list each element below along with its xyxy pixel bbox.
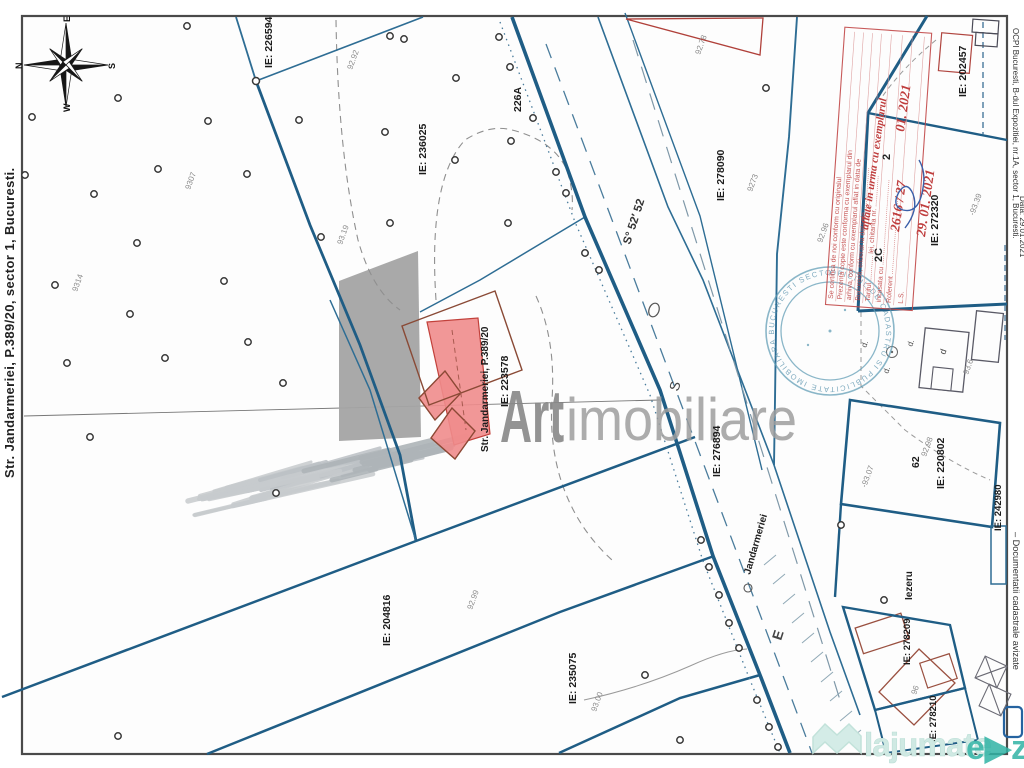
- svg-text:IE: 276894: IE: 276894: [711, 425, 723, 477]
- svg-text:IE: 278209: IE: 278209: [902, 619, 913, 665]
- svg-text:E: E: [62, 16, 72, 22]
- svg-text:imobiliare: imobiliare: [566, 386, 797, 453]
- svg-text:2C: 2C: [873, 248, 885, 262]
- svg-text:Str. Jandarmeriei, P.389/20: Str. Jandarmeriei, P.389/20: [480, 326, 491, 452]
- svg-text:IE: 235075: IE: 235075: [567, 652, 579, 704]
- svg-text:Str. Jandarmeriei, P.389/20, s: Str. Jandarmeriei, P.389/20, sector 1, B…: [2, 167, 17, 478]
- svg-text:W: W: [62, 103, 72, 112]
- svg-text:2: 2: [881, 154, 893, 160]
- svg-text:IE: 236025: IE: 236025: [417, 123, 429, 175]
- svg-text:Iezeru: Iezeru: [904, 571, 915, 600]
- svg-text:IE: 226594: IE: 226594: [263, 16, 275, 68]
- svg-text:IE: 220802: IE: 220802: [935, 437, 947, 489]
- svg-text:IE: 202457: IE: 202457: [957, 45, 969, 97]
- svg-text:L.S.: L.S.: [898, 291, 906, 304]
- svg-text:IE: 204816: IE: 204816: [381, 594, 393, 646]
- svg-text:e▶z: e▶z: [966, 729, 1024, 767]
- svg-text:N: N: [14, 63, 24, 70]
- svg-text:IE: 242980: IE: 242980: [993, 485, 1004, 531]
- svg-text:226A: 226A: [512, 86, 524, 112]
- svg-text:Data: 29.01.2021: Data: 29.01.2021: [1018, 196, 1024, 258]
- svg-text:IE: 272320: IE: 272320: [929, 194, 941, 246]
- svg-text:IE: 278090: IE: 278090: [715, 149, 727, 201]
- svg-text:S: S: [107, 63, 117, 69]
- svg-text:62: 62: [910, 456, 922, 468]
- svg-text:– Documentatii cadastrale aviz: – Documentatii cadastrale avizate: [1011, 532, 1021, 670]
- svg-text:IE: 223578: IE: 223578: [499, 355, 511, 407]
